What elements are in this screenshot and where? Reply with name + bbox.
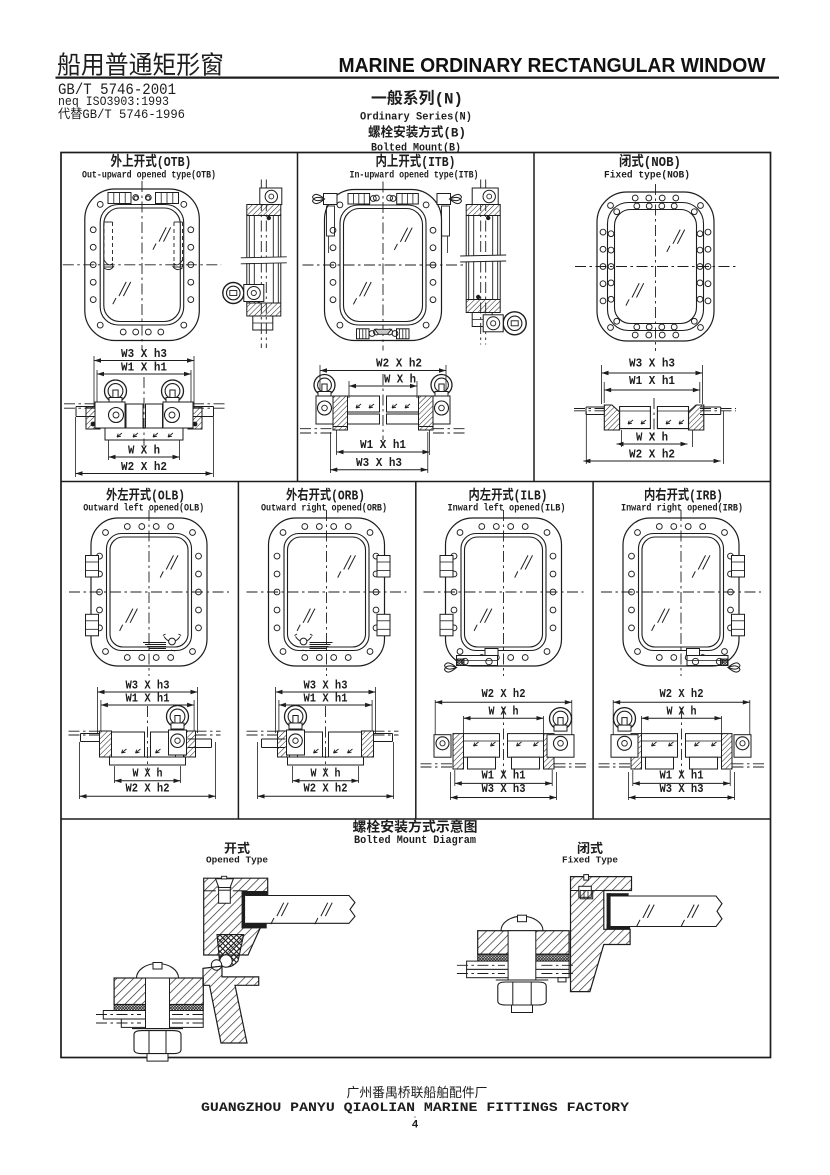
svg-text:W1 X h1: W1 X h1 xyxy=(629,374,675,388)
svg-text:W X h: W X h xyxy=(128,444,160,458)
svg-text:In-upward opened type(ITB): In-upward opened type(ITB) xyxy=(350,170,479,182)
svg-text:闭式(NOB): 闭式(NOB) xyxy=(619,151,681,171)
svg-text:W3 X h3: W3 X h3 xyxy=(660,782,704,796)
svg-text:W X h: W X h xyxy=(636,431,668,445)
svg-text:Fixed type(NOB): Fixed type(NOB) xyxy=(604,170,690,182)
svg-text:一般系列(N): 一般系列(N) xyxy=(371,85,463,109)
svg-text:W X h: W X h xyxy=(311,767,341,781)
svg-text:W2 X h2: W2 X h2 xyxy=(376,357,422,371)
svg-text:螺栓安装方式示意图: 螺栓安装方式示意图 xyxy=(353,816,478,836)
svg-text:Outward right opened(ORB): Outward right opened(ORB) xyxy=(261,503,387,515)
svg-text:W2 X h2: W2 X h2 xyxy=(629,448,675,462)
svg-text:代替GB/T 5746-1996: 代替GB/T 5746-1996 xyxy=(58,103,185,122)
svg-text:Inward left opened(ILB): Inward left opened(ILB) xyxy=(448,503,566,515)
svg-text:MARINE ORDINARY RECTANGULAR WI: MARINE ORDINARY RECTANGULAR WINDOW xyxy=(339,54,767,77)
svg-text:W2 X h2: W2 X h2 xyxy=(482,687,526,701)
svg-text:W2 X h2: W2 X h2 xyxy=(126,782,170,796)
svg-text:GUANGZHOU PANYU QIAOLIAN MARIN: GUANGZHOU PANYU QIAOLIAN MARINE FITTINGS… xyxy=(201,1100,629,1115)
svg-text:W3 X h3: W3 X h3 xyxy=(121,347,167,361)
svg-text:Outward left opened(OLB): Outward left opened(OLB) xyxy=(83,503,204,515)
svg-text:W3 X h3: W3 X h3 xyxy=(629,357,675,371)
svg-text:W3 X h3: W3 X h3 xyxy=(482,782,526,796)
svg-text:W2 X h2: W2 X h2 xyxy=(304,782,348,796)
svg-text:内右开式(IRB): 内右开式(IRB) xyxy=(644,484,723,504)
svg-text:W2 X h2: W2 X h2 xyxy=(660,687,704,701)
svg-text:外上开式(OTB): 外上开式(OTB) xyxy=(111,151,192,171)
svg-text:广州番禺桥联船舶配件厂: 广州番禺桥联船舶配件厂 xyxy=(347,1082,488,1101)
svg-text:W2 X h2: W2 X h2 xyxy=(121,460,167,474)
svg-text:W1 X h1: W1 X h1 xyxy=(121,361,167,375)
svg-text:内上开式(ITB): 内上开式(ITB) xyxy=(376,151,456,171)
svg-text:W3 X h3: W3 X h3 xyxy=(126,679,170,693)
svg-text:W1 X h1: W1 X h1 xyxy=(660,769,704,783)
svg-text:Inward right opened(IRB): Inward right opened(IRB) xyxy=(621,503,743,515)
svg-text:船用普通矩形窗: 船用普通矩形窗 xyxy=(57,46,224,82)
svg-text:W3 X h3: W3 X h3 xyxy=(304,679,348,693)
svg-text:Out-upward opened type(OTB): Out-upward opened type(OTB) xyxy=(82,170,216,182)
svg-text:Fixed Type: Fixed Type xyxy=(562,855,618,866)
svg-text:Opened Type: Opened Type xyxy=(206,855,268,866)
svg-text:外左开式(OLB): 外左开式(OLB) xyxy=(106,484,185,504)
svg-text:W1 X h1: W1 X h1 xyxy=(360,438,406,452)
svg-text:W1 X h1: W1 X h1 xyxy=(126,692,170,706)
svg-text:螺栓安装方式(B): 螺栓安装方式(B) xyxy=(368,122,466,141)
svg-text:外右开式(ORB): 外右开式(ORB) xyxy=(286,484,365,504)
svg-text:4: 4 xyxy=(412,1120,419,1132)
svg-text:W1 X h1: W1 X h1 xyxy=(482,769,526,783)
svg-text:W X h: W X h xyxy=(133,767,163,781)
svg-text:内左开式(ILB): 内左开式(ILB) xyxy=(469,484,548,504)
svg-text:Bolted Mount Diagram: Bolted Mount Diagram xyxy=(354,835,476,847)
svg-text:W1 X h1: W1 X h1 xyxy=(304,692,348,706)
svg-text:W3 X h3: W3 X h3 xyxy=(356,456,402,470)
